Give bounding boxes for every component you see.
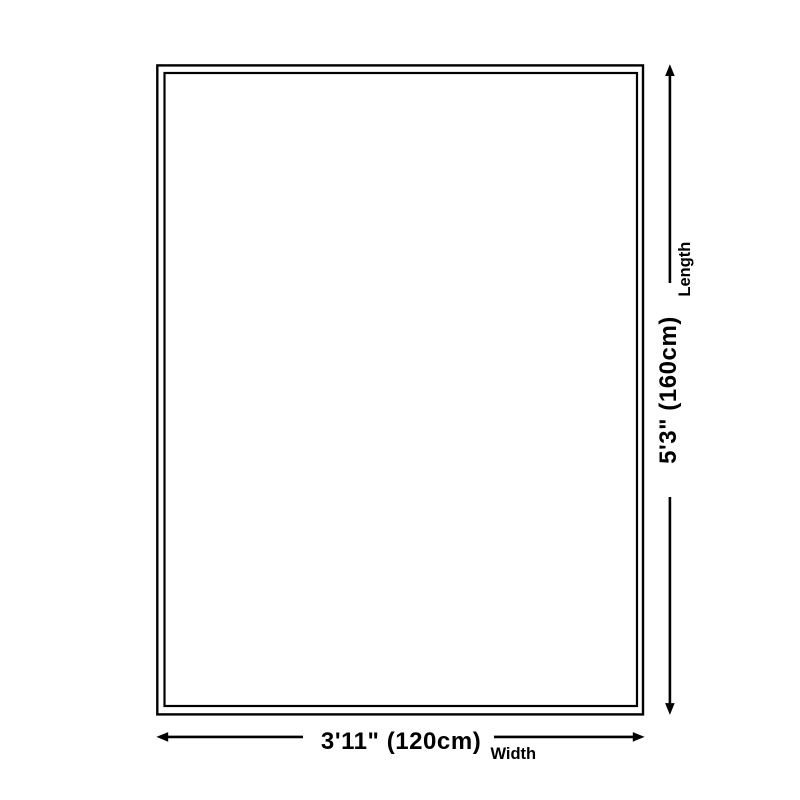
svg-text:5'3" (160cm): 5'3" (160cm) (655, 316, 682, 464)
svg-text:Length: Length (676, 242, 694, 297)
svg-text:3'11" (120cm): 3'11" (120cm) (321, 728, 481, 755)
svg-text:Width: Width (490, 745, 536, 763)
